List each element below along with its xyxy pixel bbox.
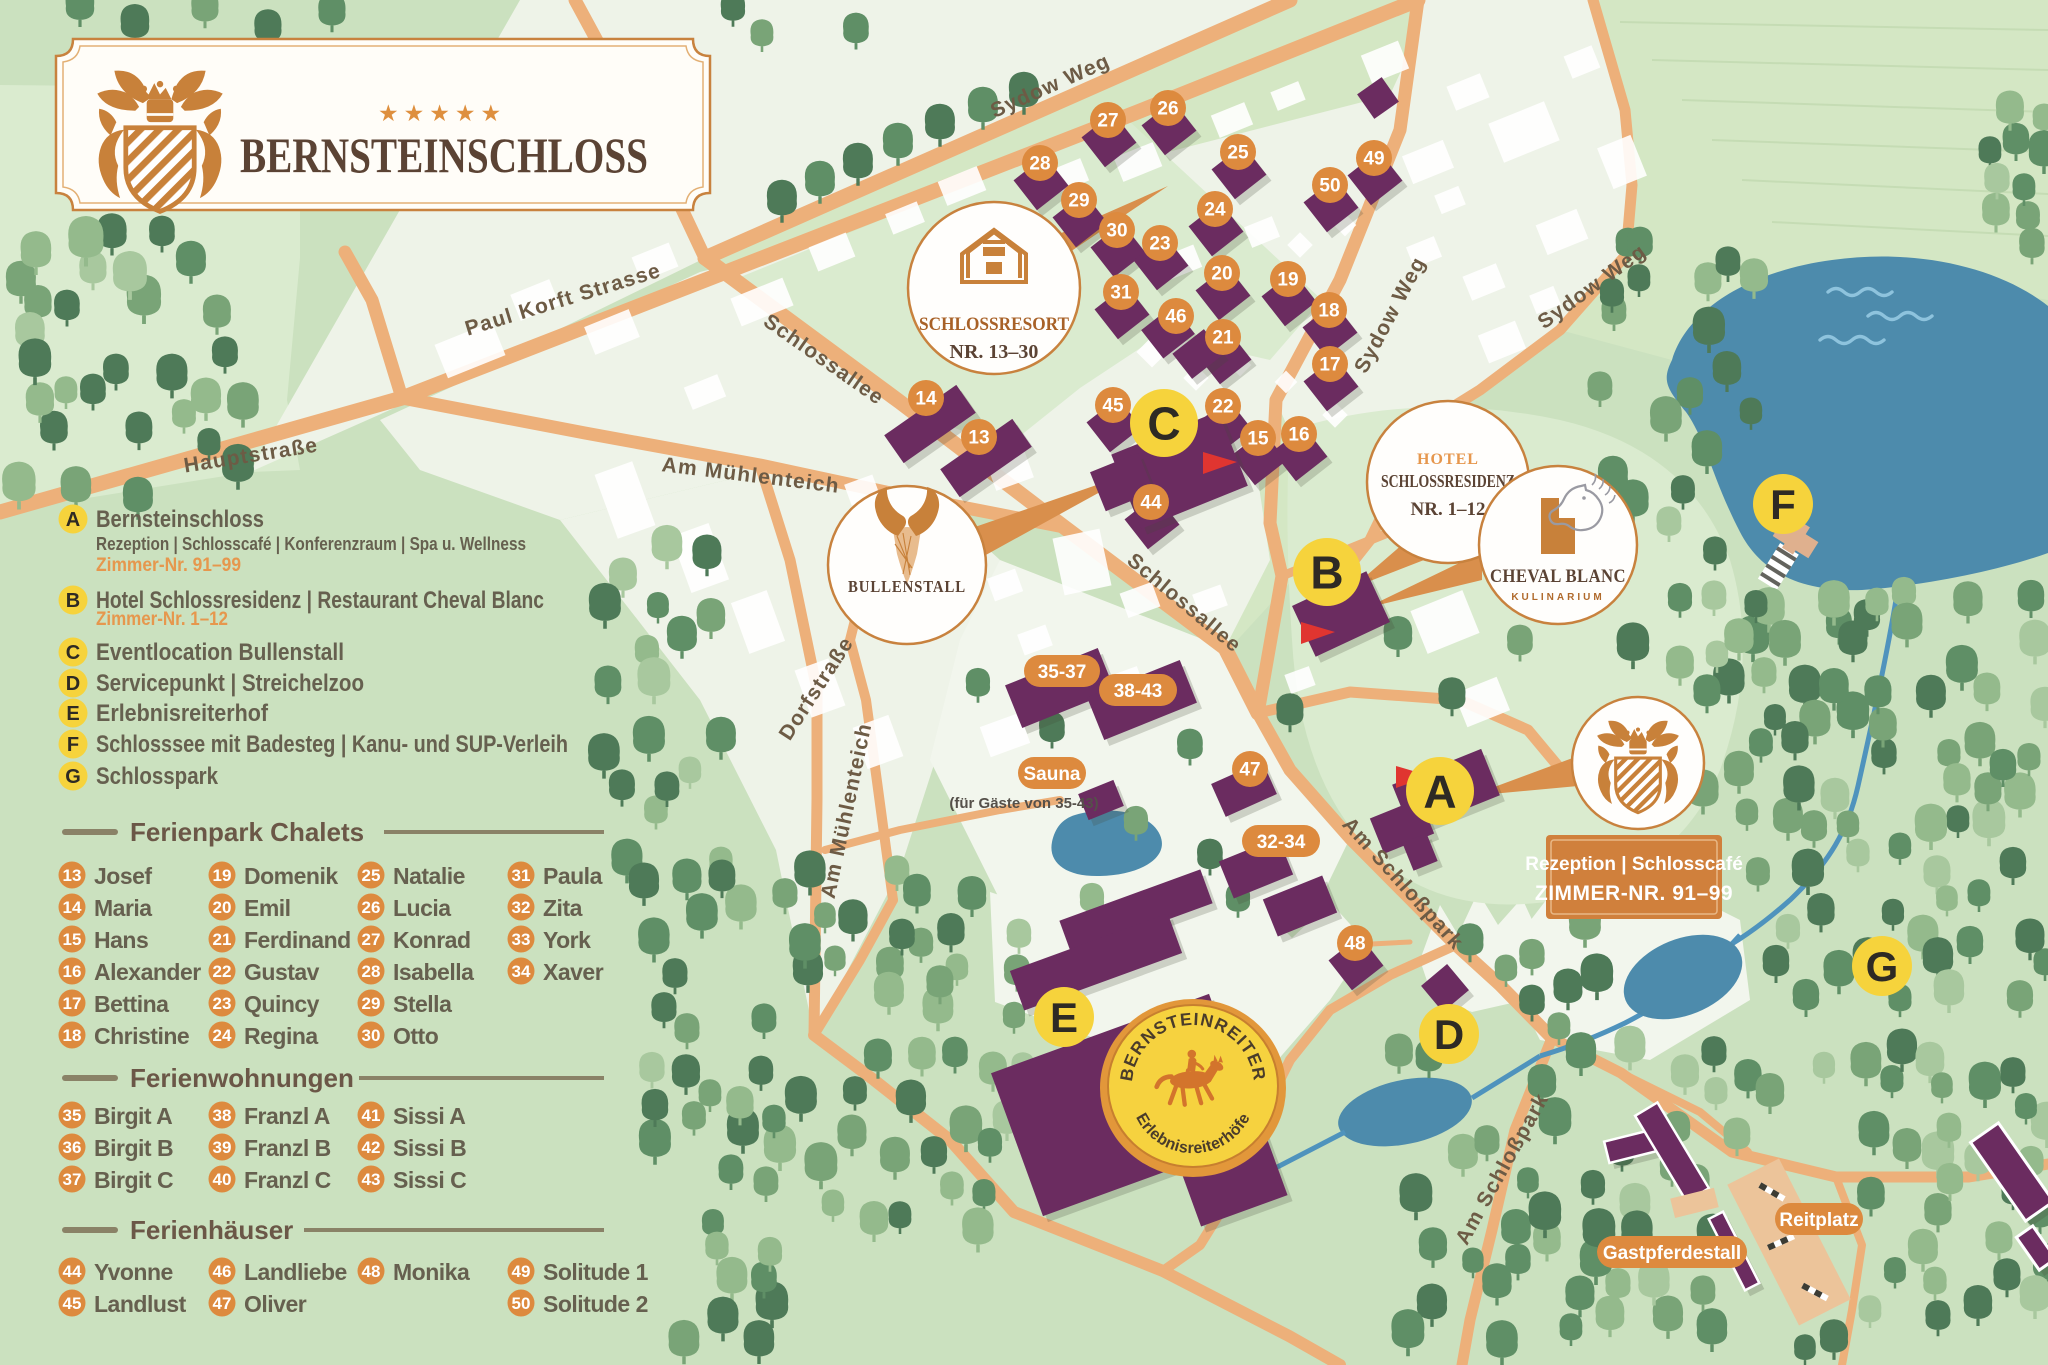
svg-text:Sissi B: Sissi B [393,1135,466,1161]
svg-text:26: 26 [1157,99,1178,120]
svg-text:18: 18 [63,1026,82,1045]
svg-text:Bettina: Bettina [94,991,169,1017]
svg-text:Ferdinand: Ferdinand [244,927,351,953]
svg-text:Solitude 1: Solitude 1 [543,1259,649,1285]
svg-text:16: 16 [63,962,82,981]
svg-text:Domenik: Domenik [244,863,338,889]
svg-text:Servicepunkt | Streichelzoo: Servicepunkt | Streichelzoo [96,670,364,697]
svg-text:Maria: Maria [94,895,152,921]
svg-text:19: 19 [213,866,232,885]
svg-text:26: 26 [362,898,381,917]
svg-text:21: 21 [1212,328,1234,349]
svg-text:49: 49 [512,1262,531,1281]
svg-text:18: 18 [1318,301,1339,322]
svg-text:Ferienhäuser: Ferienhäuser [130,1215,293,1245]
svg-text:33: 33 [512,930,531,949]
svg-text:★★★★★: ★★★★★ [378,100,506,126]
svg-text:SCHLOSSRESIDENZ: SCHLOSSRESIDENZ [1381,471,1515,491]
svg-text:SCHLOSSRESORT: SCHLOSSRESORT [919,314,1069,335]
svg-text:York: York [543,927,591,953]
svg-text:32-34: 32-34 [1257,832,1306,853]
svg-text:Rezeption | Schlosscafé | Konf: Rezeption | Schlosscafé | Konferenzraum … [96,534,526,554]
svg-text:NR. 1–12: NR. 1–12 [1411,499,1486,520]
svg-text:31: 31 [1110,283,1132,304]
svg-text:A: A [1423,766,1456,818]
svg-text:13: 13 [968,428,989,449]
svg-text:Zimmer-Nr. 1–12: Zimmer-Nr. 1–12 [96,609,228,630]
svg-text:43: 43 [362,1170,381,1189]
svg-text:Isabella: Isabella [393,959,474,985]
svg-text:Schlosssee mit Badesteg | Kanu: Schlosssee mit Badesteg | Kanu- und SUP-… [96,731,568,758]
svg-text:Schlosspark: Schlosspark [96,763,219,790]
svg-text:Hans: Hans [94,927,148,953]
svg-text:HOTEL: HOTEL [1417,451,1479,468]
svg-text:G: G [65,766,81,788]
svg-text:39: 39 [213,1138,232,1157]
svg-text:G: G [1866,943,1899,990]
svg-text:32: 32 [512,898,531,917]
svg-text:E: E [1050,994,1078,1041]
svg-text:Landlust: Landlust [94,1291,187,1317]
svg-text:Emil: Emil [244,895,291,921]
svg-text:35: 35 [63,1106,82,1125]
svg-text:Xaver: Xaver [543,959,604,985]
svg-text:BERNSTEINSCHLOSS: BERNSTEINSCHLOSS [240,127,648,183]
svg-text:Josef: Josef [94,863,152,889]
svg-text:CHEVAL BLANC: CHEVAL BLANC [1490,566,1626,587]
svg-text:Birgit B: Birgit B [94,1135,173,1161]
svg-text:Gustav: Gustav [244,959,320,985]
svg-text:Sissi C: Sissi C [393,1167,466,1193]
svg-text:50: 50 [512,1294,531,1313]
svg-text:41: 41 [362,1106,381,1125]
svg-text:B: B [1310,547,1343,599]
svg-text:23: 23 [1149,234,1170,255]
svg-text:C: C [66,642,80,664]
svg-text:D: D [1434,1011,1464,1058]
svg-text:Paula: Paula [543,863,603,889]
svg-text:Quincy: Quincy [244,991,320,1017]
svg-text:ZIMMER-NR. 91–99: ZIMMER-NR. 91–99 [1535,882,1733,905]
svg-text:Solitude 2: Solitude 2 [543,1291,648,1317]
svg-text:23: 23 [213,994,232,1013]
svg-text:47: 47 [1239,760,1260,781]
svg-text:Natalie: Natalie [393,863,465,889]
svg-text:13: 13 [63,866,82,885]
svg-text:F: F [1770,481,1796,528]
svg-text:16: 16 [1288,425,1309,446]
svg-text:15: 15 [1247,429,1269,450]
svg-text:Birgit C: Birgit C [94,1167,173,1193]
svg-text:31: 31 [512,866,531,885]
svg-text:28: 28 [362,962,381,981]
svg-text:Ferienwohnungen: Ferienwohnungen [130,1063,354,1093]
svg-text:20: 20 [213,898,232,917]
svg-text:Sissi A: Sissi A [393,1103,465,1129]
svg-text:Franzl A: Franzl A [244,1103,330,1129]
svg-text:42: 42 [362,1138,381,1157]
svg-text:Lucia: Lucia [393,895,451,921]
svg-text:Gastpferdestall: Gastpferdestall [1603,1243,1741,1264]
svg-text:(für Gäste von 35-43): (für Gäste von 35-43) [949,795,1098,812]
svg-text:Zimmer-Nr. 91–99: Zimmer-Nr. 91–99 [96,555,241,576]
svg-text:49: 49 [1363,149,1384,170]
svg-text:Regina: Regina [244,1023,318,1049]
svg-text:Oliver: Oliver [244,1291,307,1317]
svg-text:Christine: Christine [94,1023,189,1049]
svg-text:Bernsteinschloss: Bernsteinschloss [96,506,264,533]
svg-text:22: 22 [213,962,232,981]
svg-text:37: 37 [63,1170,82,1189]
svg-text:D: D [66,673,80,695]
svg-text:Rezeption | Schlosscafé: Rezeption | Schlosscafé [1525,854,1743,875]
svg-text:Alexander: Alexander [94,959,201,985]
svg-text:38: 38 [213,1106,232,1125]
svg-text:36: 36 [63,1138,82,1157]
svg-text:20: 20 [1211,264,1232,285]
svg-text:14: 14 [915,389,937,410]
svg-text:Eventlocation Bullenstall: Eventlocation Bullenstall [96,639,344,666]
svg-text:45: 45 [63,1294,82,1313]
svg-text:Yvonne: Yvonne [94,1259,173,1285]
svg-text:25: 25 [362,866,381,885]
svg-text:21: 21 [213,930,232,949]
svg-text:34: 34 [512,962,531,981]
svg-text:45: 45 [1102,396,1124,417]
svg-text:Ferienpark Chalets: Ferienpark Chalets [130,817,364,847]
svg-text:Reitplatz: Reitplatz [1779,1210,1858,1231]
svg-text:40: 40 [213,1170,232,1189]
svg-text:14: 14 [63,898,82,917]
svg-text:KULINARIUM: KULINARIUM [1511,592,1604,603]
svg-text:Zita: Zita [543,895,583,921]
svg-text:B: B [66,590,80,612]
svg-text:27: 27 [1097,111,1118,132]
svg-text:17: 17 [63,994,82,1013]
svg-text:17: 17 [1319,355,1340,376]
svg-text:28: 28 [1029,154,1050,175]
svg-text:F: F [67,734,79,756]
svg-text:A: A [66,509,80,531]
svg-text:47: 47 [213,1294,232,1313]
svg-text:48: 48 [1344,934,1365,955]
svg-text:22: 22 [1212,397,1233,418]
svg-text:29: 29 [362,994,381,1013]
svg-text:48: 48 [362,1262,381,1281]
svg-text:27: 27 [362,930,381,949]
svg-text:46: 46 [213,1262,232,1281]
svg-text:Franzl B: Franzl B [244,1135,331,1161]
svg-text:38-43: 38-43 [1114,681,1163,702]
svg-text:30: 30 [362,1026,381,1045]
svg-text:Erlebnisreiterhof: Erlebnisreiterhof [96,700,269,727]
svg-text:Stella: Stella [393,991,452,1017]
svg-text:Otto: Otto [393,1023,439,1049]
svg-text:24: 24 [1204,200,1226,221]
svg-text:35-37: 35-37 [1038,662,1087,683]
svg-text:44: 44 [63,1262,82,1281]
svg-text:50: 50 [1319,176,1340,197]
svg-text:BULLENSTALL: BULLENSTALL [848,577,966,596]
svg-text:Birgit A: Birgit A [94,1103,172,1129]
svg-text:Landliebe: Landliebe [244,1259,347,1285]
svg-text:Konrad: Konrad [393,927,471,953]
svg-text:Sauna: Sauna [1023,764,1080,785]
svg-text:44: 44 [1140,493,1162,514]
svg-text:24: 24 [213,1026,232,1045]
svg-text:C: C [1147,398,1180,450]
svg-text:Franzl C: Franzl C [244,1167,331,1193]
svg-text:Monika: Monika [393,1259,470,1285]
svg-text:15: 15 [63,930,82,949]
svg-text:25: 25 [1227,143,1249,164]
svg-text:19: 19 [1277,270,1298,291]
svg-text:NR. 13–30: NR. 13–30 [950,341,1039,363]
svg-text:E: E [66,703,79,725]
svg-text:46: 46 [1165,307,1186,328]
svg-text:29: 29 [1068,191,1089,212]
svg-text:30: 30 [1106,221,1127,242]
